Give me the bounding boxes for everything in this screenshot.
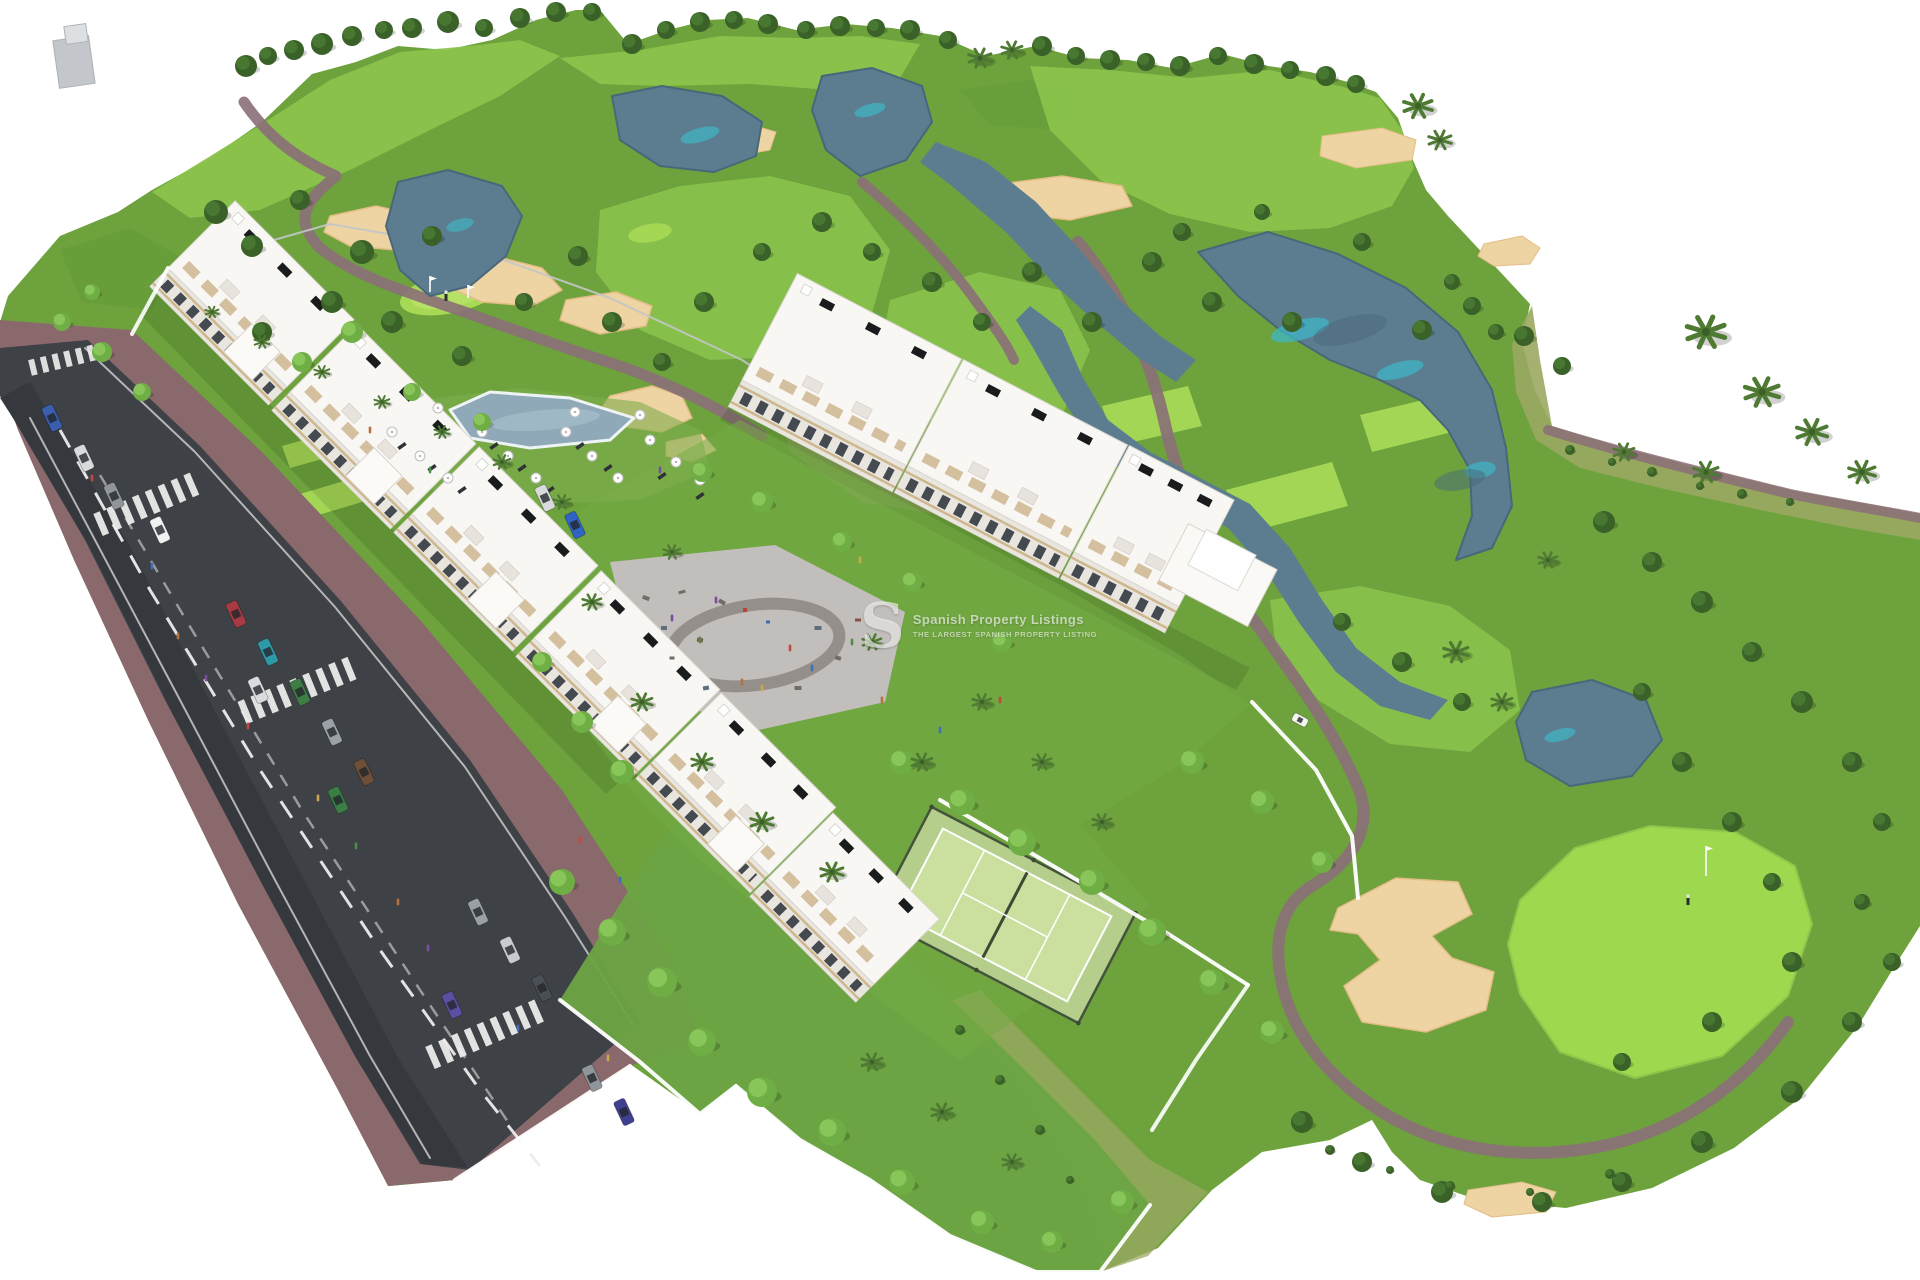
tree-icon-highlight xyxy=(343,27,355,39)
palm-center xyxy=(1500,700,1504,704)
palm-center xyxy=(830,870,835,875)
garden-tree-icon-highlight xyxy=(649,969,668,988)
palm-center xyxy=(1100,820,1104,824)
tree-icon-highlight xyxy=(423,227,435,239)
garden-tree-icon-highlight xyxy=(891,751,906,766)
palm-center xyxy=(320,370,323,373)
garden-tree-icon-highlight xyxy=(533,653,545,665)
pedestrian xyxy=(397,899,400,906)
palm-center xyxy=(1546,558,1550,562)
palm-center xyxy=(1622,450,1626,454)
tree-icon-highlight xyxy=(1692,1132,1706,1146)
pedestrian xyxy=(715,597,718,604)
garden-tree-icon-highlight xyxy=(752,492,766,506)
garden-tree-icon-highlight xyxy=(903,573,915,585)
pedestrian xyxy=(859,557,862,564)
palm-center xyxy=(1010,48,1014,52)
tree-icon-highlight xyxy=(1703,1013,1715,1025)
garden-tree-icon-highlight xyxy=(134,384,145,395)
palm-center xyxy=(1809,429,1815,435)
garden-tree-icon-highlight xyxy=(1181,751,1196,766)
tree-icon-highlight xyxy=(1782,1082,1796,1096)
palm-center xyxy=(940,1110,944,1114)
garden-tree-icon-highlight xyxy=(54,314,65,325)
garden-tree-icon-highlight xyxy=(971,1211,986,1226)
tree-icon-highlight xyxy=(1489,325,1499,335)
tree-icon-highlight xyxy=(1203,293,1215,305)
tree-icon-highlight xyxy=(1334,614,1345,625)
pedestrian xyxy=(619,877,622,884)
garden-tree-icon-highlight xyxy=(572,712,586,726)
garden-tree-icon-highlight xyxy=(1200,970,1216,986)
pedestrian xyxy=(671,615,674,622)
tree-icon-highlight xyxy=(1245,55,1257,67)
garden-tree-icon-highlight xyxy=(1042,1232,1056,1246)
tree-icon-highlight xyxy=(831,17,843,29)
pedestrian xyxy=(369,427,372,434)
palm-center xyxy=(590,600,594,604)
garden-tree-icon-highlight xyxy=(993,633,1005,645)
tree-icon-highlight xyxy=(1764,874,1775,885)
garden-tree-icon-highlight xyxy=(474,414,485,425)
tree-icon-highlight xyxy=(1393,653,1405,665)
tree-icon-highlight xyxy=(260,48,271,59)
pedestrian xyxy=(427,945,430,952)
playground-equipment xyxy=(855,619,861,622)
garden-tree-icon-highlight xyxy=(85,285,95,295)
golfer-head xyxy=(444,290,447,293)
parasol-pole xyxy=(617,477,619,479)
tree-icon-highlight xyxy=(1454,694,1465,705)
palm-center xyxy=(260,340,263,343)
tree-icon-highlight xyxy=(1068,48,1079,59)
palm-center xyxy=(980,700,984,704)
tree-icon-highlight xyxy=(1083,313,1095,325)
palm-center xyxy=(640,700,644,704)
golfer xyxy=(445,294,448,301)
tree-icon-highlight xyxy=(1743,643,1755,655)
tree-icon-highlight xyxy=(205,201,220,216)
parasol-pole xyxy=(574,411,576,413)
palm-center xyxy=(1010,1160,1014,1164)
palm-center xyxy=(500,460,504,464)
tree-icon-highlight xyxy=(236,56,250,70)
tree-icon-highlight xyxy=(291,191,303,203)
pedestrian xyxy=(91,475,94,482)
tree-icon-highlight xyxy=(759,15,771,27)
pedestrian xyxy=(659,467,662,474)
pedestrian xyxy=(881,697,884,704)
pedestrian xyxy=(761,685,764,692)
palm-center xyxy=(560,500,564,504)
tree-icon-highlight xyxy=(1874,814,1885,825)
garden-tree-icon-highlight xyxy=(693,463,705,475)
garden-tree-icon-highlight xyxy=(819,1119,836,1136)
tree-icon-highlight xyxy=(569,247,581,259)
tree-icon-highlight xyxy=(1033,37,1045,49)
tree-icon-highlight xyxy=(1464,298,1475,309)
garden-tree-icon-highlight xyxy=(689,1029,706,1046)
tree-icon-highlight xyxy=(1696,482,1701,487)
tree-icon-highlight xyxy=(1354,234,1365,245)
palm-center xyxy=(1703,469,1708,474)
tree-icon-highlight xyxy=(1292,1112,1306,1126)
tree-icon-highlight xyxy=(253,323,265,335)
tree-icon-highlight xyxy=(1446,1182,1452,1188)
garden-tree-icon-highlight xyxy=(293,353,305,365)
palm-center xyxy=(1702,328,1710,336)
tree-icon-highlight xyxy=(476,20,487,31)
tree-icon-highlight xyxy=(901,21,913,33)
tree-icon-highlight xyxy=(798,22,809,33)
garden-tree-icon-highlight xyxy=(404,384,415,395)
tree-icon-highlight xyxy=(1282,62,1293,73)
tree-icon-highlight xyxy=(658,22,669,33)
tree-icon-highlight xyxy=(403,19,415,31)
palm-center xyxy=(760,820,765,825)
parasol-pole xyxy=(391,431,393,433)
pedestrian xyxy=(317,795,320,802)
parasol-pole xyxy=(419,455,421,457)
tree-icon-highlight xyxy=(868,20,879,31)
tree-icon-highlight xyxy=(1648,468,1654,474)
tree-icon-highlight xyxy=(691,13,703,25)
pedestrian xyxy=(517,1025,520,1032)
aerial-render-canvas: S Spanish Property Listings THE LARGEST … xyxy=(0,0,1920,1280)
garden-tree-icon-highlight xyxy=(611,761,626,776)
tree-icon-highlight xyxy=(654,354,665,365)
palm-center xyxy=(1758,388,1765,395)
garden-tree-icon-highlight xyxy=(1111,1191,1126,1206)
tree-icon-highlight xyxy=(1413,321,1425,333)
tree-icon-highlight xyxy=(864,244,875,255)
resort-aerial-render xyxy=(0,0,1920,1280)
tree-icon-highlight xyxy=(1783,953,1795,965)
tree-icon-highlight xyxy=(1843,753,1855,765)
tree-icon-highlight xyxy=(1353,1153,1365,1165)
tree-icon-highlight xyxy=(996,1076,1002,1082)
tree-icon-highlight xyxy=(1843,1013,1855,1025)
tree-icon-highlight xyxy=(1594,512,1608,526)
pedestrian xyxy=(741,679,744,686)
palm-center xyxy=(440,430,443,433)
playground-equipment xyxy=(743,608,747,612)
tree-icon-highlight xyxy=(1283,313,1295,325)
palm-center xyxy=(1415,103,1421,109)
playground-equipment xyxy=(795,686,802,690)
tree-icon-highlight xyxy=(1317,67,1329,79)
tree-icon-highlight xyxy=(285,41,297,53)
tree-icon-highlight xyxy=(1210,48,1221,59)
tree-icon-highlight xyxy=(1143,253,1155,265)
garden-tree-icon-highlight xyxy=(342,322,356,336)
palm-center xyxy=(700,760,704,764)
tree-icon-highlight xyxy=(376,22,387,33)
parasol-pole xyxy=(507,455,509,457)
garden-tree-icon-highlight xyxy=(599,919,616,936)
tree-icon-highlight xyxy=(1786,498,1791,503)
tree-icon-highlight xyxy=(1036,1126,1042,1132)
tree-icon-highlight xyxy=(1526,1188,1531,1193)
tree-icon-highlight xyxy=(1023,263,1035,275)
pedestrian xyxy=(811,665,814,672)
parasol-pole xyxy=(649,439,651,441)
tree-icon-highlight xyxy=(923,273,935,285)
pedestrian xyxy=(789,645,792,652)
tree-icon-highlight xyxy=(312,34,326,48)
tree-icon-highlight xyxy=(351,241,366,256)
palm-center xyxy=(870,640,874,644)
pedestrian xyxy=(699,637,702,644)
tree-icon-highlight xyxy=(1884,954,1895,965)
tree-icon-highlight xyxy=(1515,327,1527,339)
pedestrian xyxy=(205,675,208,682)
parasol-pole xyxy=(565,431,567,433)
pedestrian xyxy=(851,639,854,646)
palm-center xyxy=(211,311,214,314)
tree-icon-highlight xyxy=(1432,1182,1446,1196)
tree-icon-highlight xyxy=(1326,1146,1332,1152)
palm-center xyxy=(670,550,674,554)
tree-icon-highlight xyxy=(695,293,707,305)
golfer xyxy=(1687,898,1690,905)
tree-icon-highlight xyxy=(1101,51,1113,63)
tree-icon-highlight xyxy=(1554,358,1565,369)
sand-bunker xyxy=(1478,236,1540,266)
tree-icon-highlight xyxy=(1348,76,1359,87)
tree-icon-highlight xyxy=(1174,224,1185,235)
pedestrian xyxy=(607,1055,610,1062)
tree-icon-highlight xyxy=(1533,1193,1545,1205)
palm-center xyxy=(920,760,924,764)
palm-center xyxy=(978,56,983,61)
tree-icon-highlight xyxy=(1386,1166,1391,1171)
palm-center xyxy=(1438,138,1443,143)
golfer-head xyxy=(1686,894,1689,897)
tree-icon-highlight xyxy=(956,1026,962,1032)
tree-icon-highlight xyxy=(1606,1170,1612,1176)
garden-tree-icon-highlight xyxy=(1312,852,1326,866)
garden-tree-icon-highlight xyxy=(550,870,566,886)
palm-center xyxy=(1859,469,1865,475)
tree-icon-highlight xyxy=(584,4,595,15)
palm-center xyxy=(1453,649,1458,654)
tree-icon-highlight xyxy=(1723,813,1735,825)
garden-tree-icon-highlight xyxy=(1009,829,1026,846)
tree-icon-highlight xyxy=(547,3,559,15)
tree-icon-highlight xyxy=(1171,57,1183,69)
palm-center xyxy=(870,1060,874,1064)
parasol-pole xyxy=(591,455,593,457)
tree-icon-highlight xyxy=(1792,692,1806,706)
pedestrian xyxy=(247,723,250,730)
tree-icon-highlight xyxy=(754,244,765,255)
garden-tree-icon-highlight xyxy=(1261,1021,1276,1036)
tree-icon-highlight xyxy=(453,347,465,359)
tree-icon-highlight xyxy=(382,312,396,326)
tree-icon-highlight xyxy=(511,9,523,21)
tree-icon-highlight xyxy=(1445,275,1455,285)
parasol-pole xyxy=(675,461,677,463)
playground-equipment xyxy=(661,626,667,630)
tree-icon-highlight xyxy=(623,35,635,47)
tree-icon-highlight xyxy=(940,32,951,43)
pedestrian xyxy=(999,697,1002,704)
tree-icon-highlight xyxy=(603,313,615,325)
palm-center xyxy=(380,400,383,403)
parasol-pole xyxy=(639,414,641,416)
tree-icon-highlight xyxy=(1608,458,1613,463)
garden-tree-icon-highlight xyxy=(950,790,966,806)
tree-icon-highlight xyxy=(1855,895,1865,905)
garden-tree-icon-highlight xyxy=(1080,870,1096,886)
playground-equipment xyxy=(766,621,770,624)
garden-tree-icon-highlight xyxy=(890,1170,906,1186)
pedestrian xyxy=(579,837,582,844)
tree-icon-highlight xyxy=(1673,753,1685,765)
tree-icon-highlight xyxy=(242,236,256,250)
pedestrian xyxy=(177,633,180,640)
car xyxy=(613,1098,635,1127)
parasol-pole xyxy=(481,431,483,433)
garden-tree-icon-highlight xyxy=(1139,919,1156,936)
garden-tree-icon-highlight xyxy=(833,533,845,545)
tree-icon-highlight xyxy=(322,292,336,306)
playground-equipment xyxy=(815,626,822,630)
pedestrian xyxy=(429,467,432,474)
palm-center xyxy=(1040,760,1044,764)
tree-icon-highlight xyxy=(1643,553,1655,565)
tree-icon-highlight xyxy=(726,12,737,23)
garden-tree-icon-highlight xyxy=(1251,791,1266,806)
tree-icon-highlight xyxy=(813,213,825,225)
tree-icon-highlight xyxy=(1566,446,1572,452)
pedestrian xyxy=(151,563,154,570)
garden-tree-icon-highlight xyxy=(749,1079,768,1098)
tree-icon-highlight xyxy=(438,12,452,26)
tree-icon-highlight xyxy=(974,314,985,325)
parasol-pole xyxy=(447,477,449,479)
parasol-pole xyxy=(437,407,439,409)
tree-icon-highlight xyxy=(516,294,527,305)
playground-equipment xyxy=(670,657,675,660)
garden-tree-icon-highlight xyxy=(93,343,105,355)
tree-icon-highlight xyxy=(1634,684,1645,695)
tree-icon-highlight xyxy=(1255,205,1265,215)
parasol-pole xyxy=(535,477,537,479)
tree-icon-highlight xyxy=(1138,54,1149,65)
tree-icon-highlight xyxy=(1614,1054,1625,1065)
pedestrian xyxy=(939,727,942,734)
clubhouse-structure xyxy=(64,24,88,45)
pedestrian xyxy=(355,843,358,850)
tree-icon-highlight xyxy=(1066,1176,1071,1181)
tree-icon-highlight xyxy=(1738,490,1744,496)
tree-icon-highlight xyxy=(1692,592,1706,606)
